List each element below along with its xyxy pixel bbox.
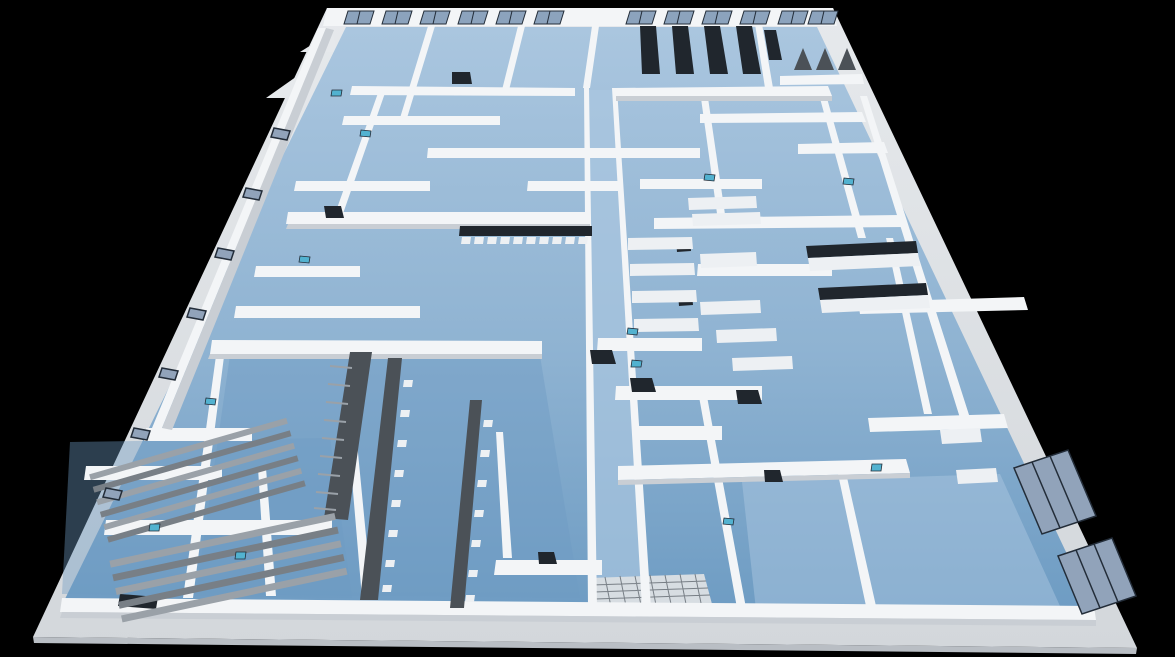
acoustic-wedges <box>794 48 856 70</box>
floorplan-render <box>0 0 1175 657</box>
render-canvas <box>0 0 1175 657</box>
